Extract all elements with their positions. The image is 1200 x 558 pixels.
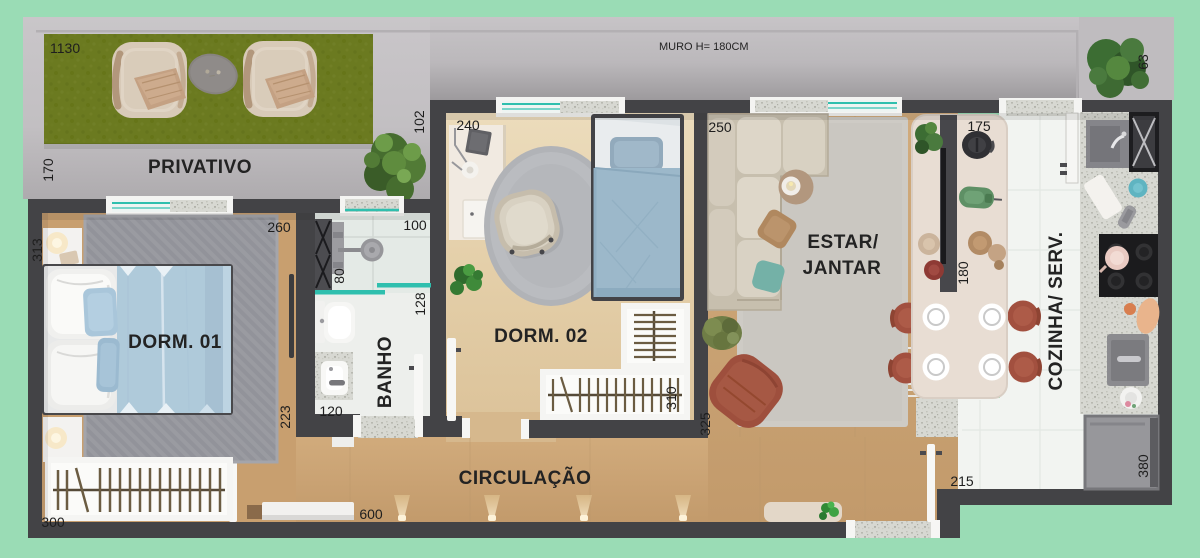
svg-text:240: 240: [456, 117, 480, 133]
svg-text:300: 300: [41, 514, 65, 530]
svg-text:BANHO: BANHO: [375, 336, 396, 408]
svg-text:120: 120: [319, 403, 343, 419]
svg-text:ESTAR/: ESTAR/: [807, 232, 878, 253]
svg-text:170: 170: [40, 158, 56, 182]
svg-text:180: 180: [955, 261, 971, 285]
svg-text:1130: 1130: [50, 40, 80, 56]
svg-text:250: 250: [708, 119, 732, 135]
svg-text:DORM. 01: DORM. 01: [128, 332, 222, 353]
svg-text:380: 380: [1135, 454, 1151, 478]
svg-text:COZINHA/ SERV.: COZINHA/ SERV.: [1046, 231, 1067, 390]
svg-text:215: 215: [950, 473, 974, 489]
svg-text:63: 63: [1135, 54, 1151, 70]
svg-text:MURO H= 180CM: MURO H= 180CM: [659, 41, 749, 53]
svg-text:128: 128: [412, 292, 428, 316]
svg-text:260: 260: [267, 219, 291, 235]
svg-text:CIRCULAÇÃO: CIRCULAÇÃO: [459, 467, 592, 489]
svg-text:JANTAR: JANTAR: [803, 258, 882, 279]
svg-text:600: 600: [359, 506, 383, 522]
svg-text:223: 223: [277, 405, 293, 429]
svg-text:PRIVATIVO: PRIVATIVO: [148, 157, 252, 178]
svg-text:80: 80: [331, 268, 347, 284]
svg-text:100: 100: [403, 217, 427, 233]
svg-text:102: 102: [411, 110, 427, 134]
svg-text:DORM. 02: DORM. 02: [494, 326, 588, 347]
svg-text:175: 175: [967, 118, 991, 134]
svg-text:313: 313: [29, 238, 45, 262]
svg-text:325: 325: [697, 412, 713, 436]
svg-text:310: 310: [663, 386, 679, 410]
